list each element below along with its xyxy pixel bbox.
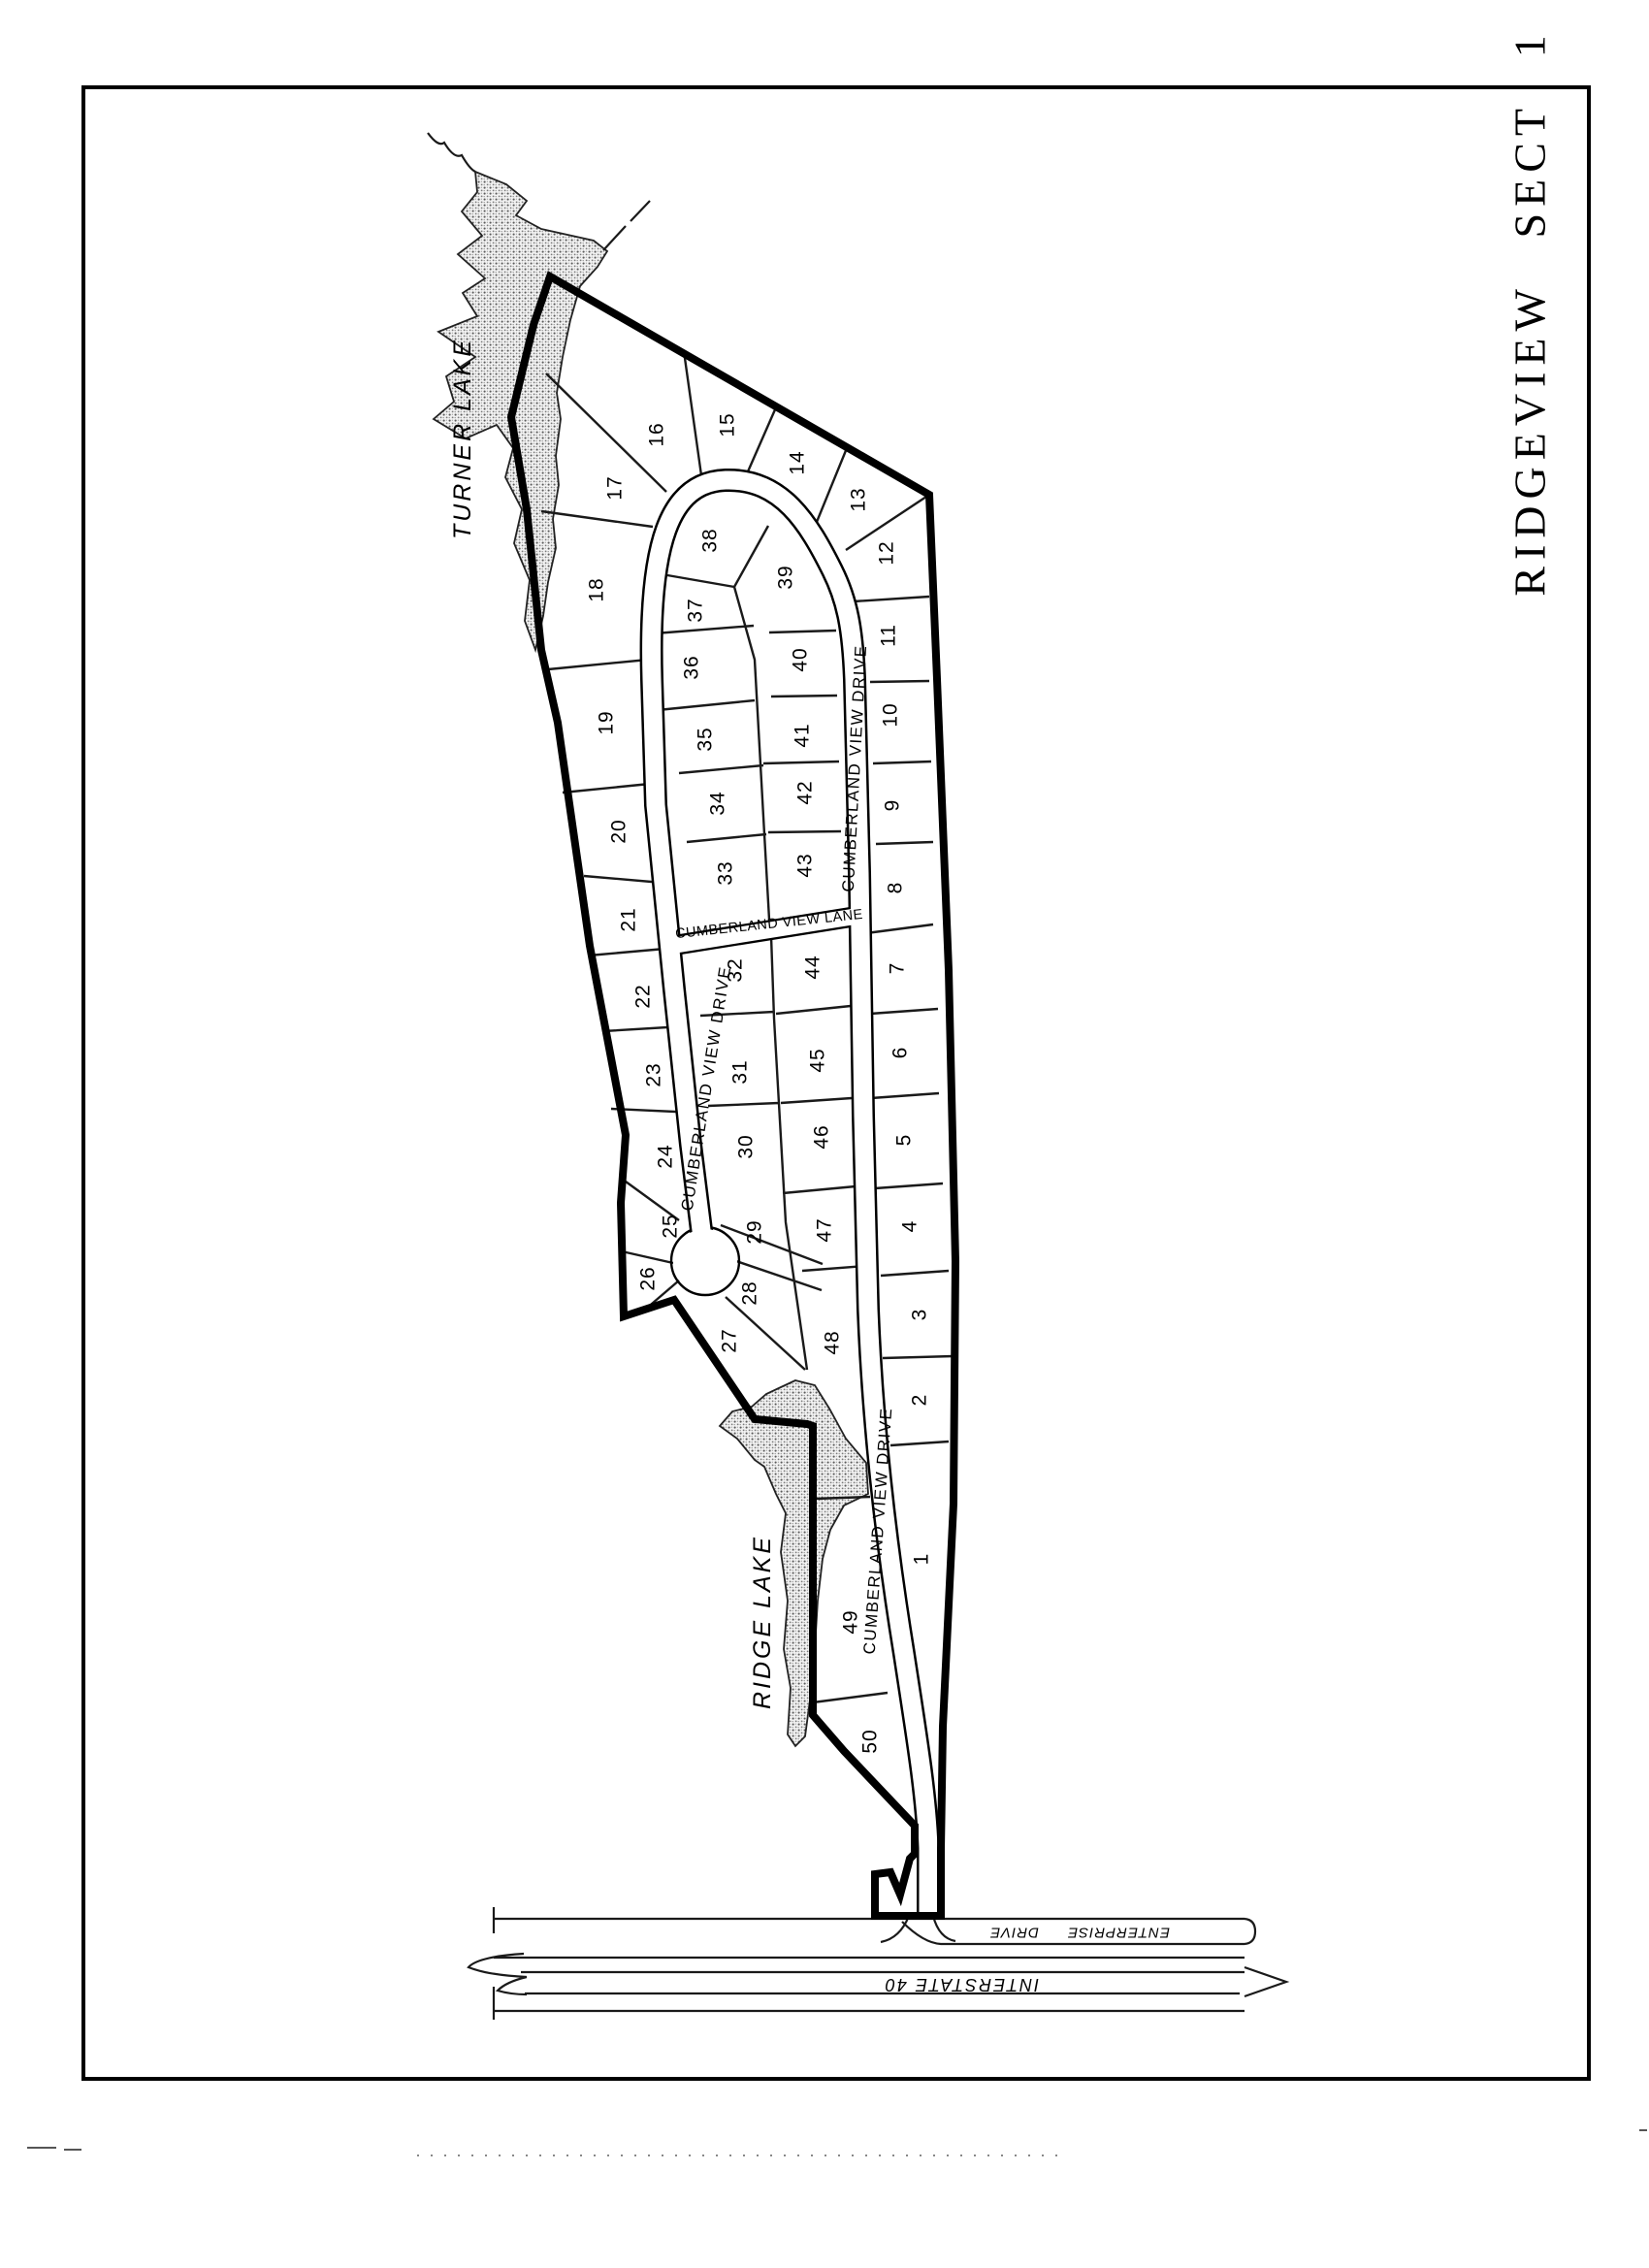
- creek-line-east: [603, 201, 650, 250]
- lot-number-10: 10: [880, 702, 902, 727]
- lot-number-21: 21: [618, 907, 640, 931]
- lot-number-6: 6: [889, 1047, 912, 1059]
- ridge-lake-shape: [720, 1380, 868, 1746]
- lot-number-25: 25: [660, 1214, 682, 1238]
- lot-number-19: 19: [596, 710, 618, 734]
- lot-number-50: 50: [859, 1729, 882, 1753]
- lot-number-8: 8: [885, 882, 907, 894]
- lot-number-45: 45: [807, 1048, 829, 1072]
- lot-number-48: 48: [822, 1330, 844, 1354]
- lot-number-13: 13: [848, 487, 870, 511]
- street-label-enterprise-drive: ENTERPRISE DRIVE: [989, 1925, 1170, 1941]
- lot-number-15: 15: [717, 412, 739, 437]
- lot-number-44: 44: [802, 955, 824, 979]
- lot-number-23: 23: [643, 1062, 665, 1086]
- lot-number-37: 37: [685, 598, 707, 622]
- sheet-title: RIDGEVIEW SECT 1: [1505, 28, 1555, 596]
- sheet-border: [83, 87, 1589, 2079]
- lot-number-14: 14: [787, 450, 809, 474]
- lot-number-3: 3: [909, 1309, 931, 1321]
- lot-number-20: 20: [608, 819, 630, 843]
- lot-number-35: 35: [695, 727, 717, 751]
- lot-number-16: 16: [646, 422, 668, 446]
- lot-number-22: 22: [632, 984, 655, 1008]
- scan-artifact-dashes: [27, 2130, 1647, 2150]
- lot-number-5: 5: [893, 1134, 916, 1147]
- lot-number-18: 18: [586, 577, 608, 601]
- lot-number-33: 33: [715, 860, 737, 885]
- lot-number-46: 46: [811, 1124, 833, 1149]
- lot-number-12: 12: [876, 540, 898, 565]
- lot-number-30: 30: [735, 1134, 758, 1158]
- lot-number-11: 11: [878, 624, 900, 647]
- lot-number-7: 7: [887, 962, 909, 975]
- lot-number-17: 17: [604, 475, 627, 500]
- lot-number-4: 4: [899, 1220, 921, 1233]
- plat-sheet: CUMBERLAND VIEW DRIVE CUMBERLAND VIEW DR…: [0, 0, 1649, 2268]
- lot-number-47: 47: [814, 1217, 836, 1242]
- lot-number-36: 36: [681, 655, 703, 679]
- lot-number-9: 9: [882, 799, 904, 812]
- street-label-interstate-40: INTERSTATE 40: [884, 1975, 1039, 1994]
- lot-number-41: 41: [792, 723, 814, 747]
- lot-number-26: 26: [637, 1266, 660, 1290]
- lot-number-31: 31: [729, 1059, 752, 1084]
- lot-number-29: 29: [744, 1219, 766, 1244]
- ridge-lake-label: RIDGE LAKE: [749, 1535, 776, 1709]
- creek-line-west: [428, 133, 475, 172]
- lot-number-39: 39: [775, 565, 797, 589]
- lot-number-42: 42: [794, 780, 817, 804]
- lot-number-38: 38: [699, 528, 722, 552]
- plat-map-canvas: CUMBERLAND VIEW DRIVE CUMBERLAND VIEW DR…: [0, 0, 1649, 2268]
- lot-number-2: 2: [909, 1394, 931, 1407]
- turner-lake-label: TURNER LAKE: [449, 338, 476, 539]
- lot-number-28: 28: [739, 1280, 761, 1305]
- lot-number-43: 43: [794, 853, 817, 877]
- lot-number-32: 32: [725, 957, 747, 982]
- lot-number-1: 1: [911, 1553, 933, 1566]
- lot-number-49: 49: [840, 1609, 862, 1634]
- lot-number-27: 27: [719, 1328, 741, 1352]
- interstate-40-lines: [469, 1954, 1286, 2020]
- lot-number-34: 34: [707, 791, 729, 815]
- lot-number-40: 40: [790, 647, 812, 671]
- lot-number-24: 24: [655, 1144, 677, 1168]
